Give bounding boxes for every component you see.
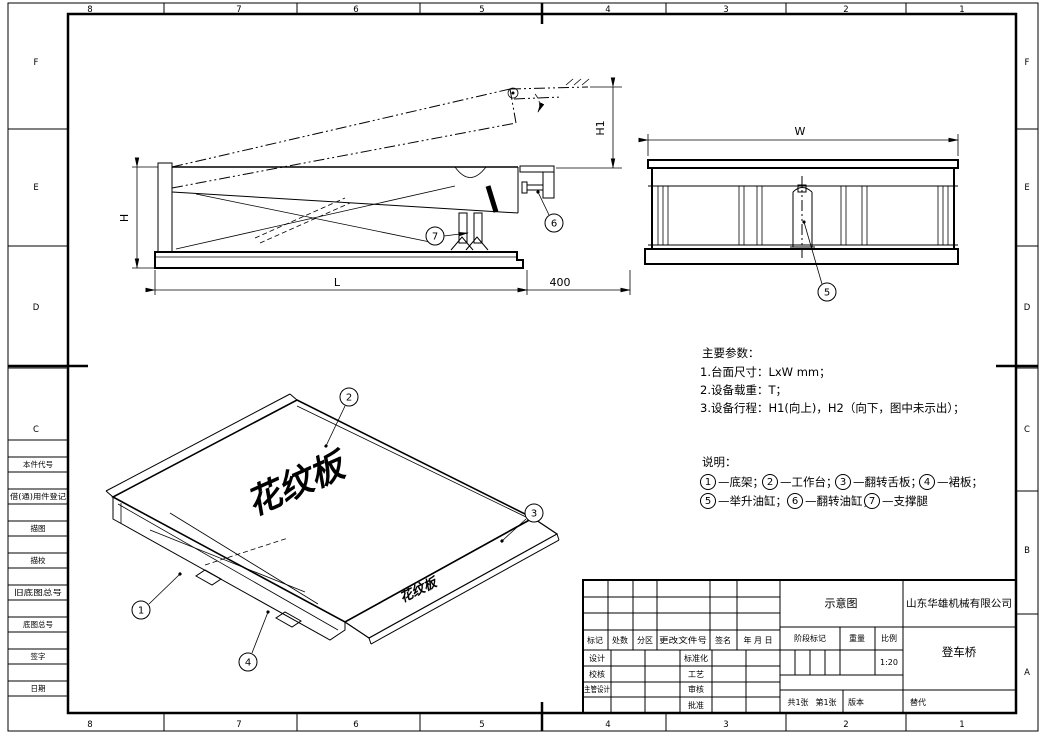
zone-number: 8 [87, 720, 92, 730]
legend-num-6: 6 [792, 496, 798, 507]
drawing-title: 登车桥 [942, 645, 977, 659]
zone-number: 3 [723, 720, 728, 730]
zone-number: 1 [959, 720, 964, 730]
callout-number-1: 1 [138, 606, 144, 617]
zone-number: 4 [605, 5, 610, 15]
margin-block-label: 旧底图总号 [14, 587, 62, 597]
replace-label: 替代 [910, 697, 926, 707]
legend-num-1: 1 [705, 477, 711, 488]
scale-value: 1:20 [880, 658, 898, 667]
zone-ticks [8, 3, 1038, 731]
front-view-dimensions: W [648, 125, 958, 156]
lip-keeper-bracket [520, 166, 554, 198]
front-view-geometry [645, 160, 958, 264]
notes: 主要参数： 1.台面尺寸：LxW mm； 2.设备载重：T； 3.设备行程：H1… [700, 346, 983, 509]
callout-number-6: 6 [551, 219, 557, 230]
zone-letter: C [33, 425, 39, 435]
side-view-dimensions: H H1 L 400 [118, 87, 630, 295]
top-plate [648, 160, 958, 168]
params-title: 主要参数： [702, 346, 760, 360]
checkered-plate-label-large: 花纹板 [241, 444, 355, 524]
zone-letter: B [1024, 546, 1030, 556]
callout-number-2: 2 [346, 393, 352, 404]
sheet-frame [8, 3, 1038, 731]
callout-number-3: 3 [531, 509, 537, 520]
stiffeners [663, 186, 943, 245]
lip-plate [345, 518, 557, 638]
sign-label-approve: 批准 [688, 700, 704, 710]
iso-callouts: 1 2 3 4 [132, 388, 543, 671]
dim-label-400: 400 [550, 276, 571, 289]
margin-block-label: 日期 [31, 684, 46, 693]
params-line-3: 3.设备行程：H1(向上)，H2（向下，图中未示出）； [700, 401, 965, 415]
revision-header-mark: 标记 [587, 635, 603, 645]
dim-label-w: W [795, 125, 806, 138]
scale-label: 比例 [881, 633, 897, 643]
legend-item-4: —裙板； [937, 475, 983, 489]
margin-block-label: 描校 [31, 555, 46, 565]
zone-grid: 8 7 6 5 4 3 2 1 8 7 6 5 4 3 2 1 F E D C … [8, 3, 1038, 731]
legend-title: 说明： [702, 455, 737, 469]
revision-header-zone: 分区 [637, 636, 653, 645]
base-outline [113, 497, 345, 640]
zone-letter: E [1024, 183, 1029, 193]
version-label: 版本 [848, 697, 864, 707]
margin-block-label: 签字 [31, 651, 46, 661]
zone-letter: E [33, 183, 38, 193]
lip-rotation-arrow [535, 94, 540, 112]
cylinder-bar [488, 186, 496, 212]
foot [276, 612, 301, 627]
dim-label-l: L [334, 276, 341, 289]
zone-number: 8 [87, 5, 92, 15]
revision-header-count: 处数 [612, 635, 628, 645]
iso-view: 花纹板 花纹板 1 2 3 4 [106, 388, 559, 671]
zone-number: 2 [843, 720, 848, 730]
zone-number: 6 [353, 720, 358, 730]
sign-label-review: 审核 [688, 684, 704, 694]
drawing-canvas: 8 7 6 5 4 3 2 1 8 7 6 5 4 3 2 1 F E D C … [0, 0, 1046, 739]
side-view: H H1 L 400 7 6 [118, 79, 630, 295]
sign-label-chief-design: 主管设计 [584, 684, 610, 694]
company-name: 山东华雄机械有限公司 [906, 597, 1012, 610]
inner-border [68, 14, 1016, 713]
zone-number: 7 [236, 720, 241, 730]
sign-label-process: 工艺 [688, 670, 704, 679]
zone-letter: A [1024, 668, 1030, 678]
zone-number: 5 [479, 720, 484, 730]
legend-item-1: —底架； [718, 475, 764, 489]
zone-number: 2 [843, 5, 848, 15]
front-view: W 5 [645, 125, 958, 301]
zone-letter: D [1024, 303, 1031, 313]
legend-item-6: —翻转油缸； [805, 494, 874, 508]
front-view-callouts: 5 [804, 222, 836, 301]
zone-letter: D [33, 303, 40, 313]
zone-number: 6 [353, 5, 358, 15]
zone-number: 5 [479, 5, 484, 15]
outer-border [8, 3, 1038, 731]
legend-num-5: 5 [705, 496, 711, 507]
legend-num-2: 2 [767, 477, 773, 488]
dim-label-h1: H1 [594, 120, 607, 135]
zone-letter: F [34, 58, 39, 68]
legend-num-3: 3 [840, 477, 846, 488]
params-line-2: 2.设备载重：T； [700, 383, 787, 397]
callout-number-5: 5 [824, 288, 830, 299]
legend-item-7: —支撑腿 [882, 494, 928, 508]
weight-label: 重量 [849, 633, 865, 643]
params-line-1: 1.台面尺寸：LxW mm； [700, 365, 831, 379]
callout-number-7: 7 [432, 232, 438, 243]
sign-label-standardization: 标准化 [684, 653, 708, 663]
legend-item-3: —翻转舌板； [853, 475, 922, 489]
base-frame [155, 252, 523, 268]
doc-type: 示意图 [825, 596, 858, 610]
legend-num-7: 7 [869, 496, 875, 507]
support-legs [451, 213, 488, 250]
margin-block-label: 描图 [31, 523, 46, 533]
drawing-sheet: 8 7 6 5 4 3 2 1 8 7 6 5 4 3 2 1 F E D C … [0, 0, 1046, 739]
callout-number-4: 4 [245, 658, 251, 669]
revision-header-docno: 更改文件号 [659, 635, 707, 645]
zone-letter: F [1025, 58, 1030, 68]
margin-block-label: 借(通)用件登记 [10, 491, 67, 501]
margin-block-label: 本件代号 [23, 459, 53, 469]
sheet-count: 共1张 [787, 698, 808, 707]
zone-number: 3 [723, 5, 728, 15]
zone-number: 4 [605, 720, 610, 730]
lip-hinge-arc [455, 167, 486, 178]
sign-label-check: 校核 [589, 669, 605, 679]
legend-num-4: 4 [924, 477, 930, 488]
zone-number: 1 [959, 5, 964, 15]
revision-header-signature: 签名 [715, 635, 731, 645]
sign-label-design: 设计 [589, 653, 605, 663]
zone-letter: C [1024, 425, 1030, 435]
margin-blocks: 本件代号 借(通)用件登记 描图 描校 旧底图总号 底图总号 签字 日期 [8, 440, 68, 696]
side-view-solid [155, 163, 554, 268]
stage-label: 阶段标记 [794, 633, 826, 643]
margin-block-label: 底图总号 [23, 619, 53, 629]
zone-number: 7 [236, 5, 241, 15]
title-block: 标记 处数 分区 更改文件号 签名 年 月 日 设计 标准化 校核 工艺 主管设… [583, 580, 1016, 713]
sheet-index: 第1张 [815, 697, 836, 707]
hinge-post [158, 163, 172, 252]
revision-header-date: 年 月 日 [743, 635, 772, 645]
legend-item-2: —工作台； [780, 475, 838, 489]
dim-label-h: H [118, 214, 131, 222]
legend-item-5: —举升油缸； [718, 494, 787, 508]
